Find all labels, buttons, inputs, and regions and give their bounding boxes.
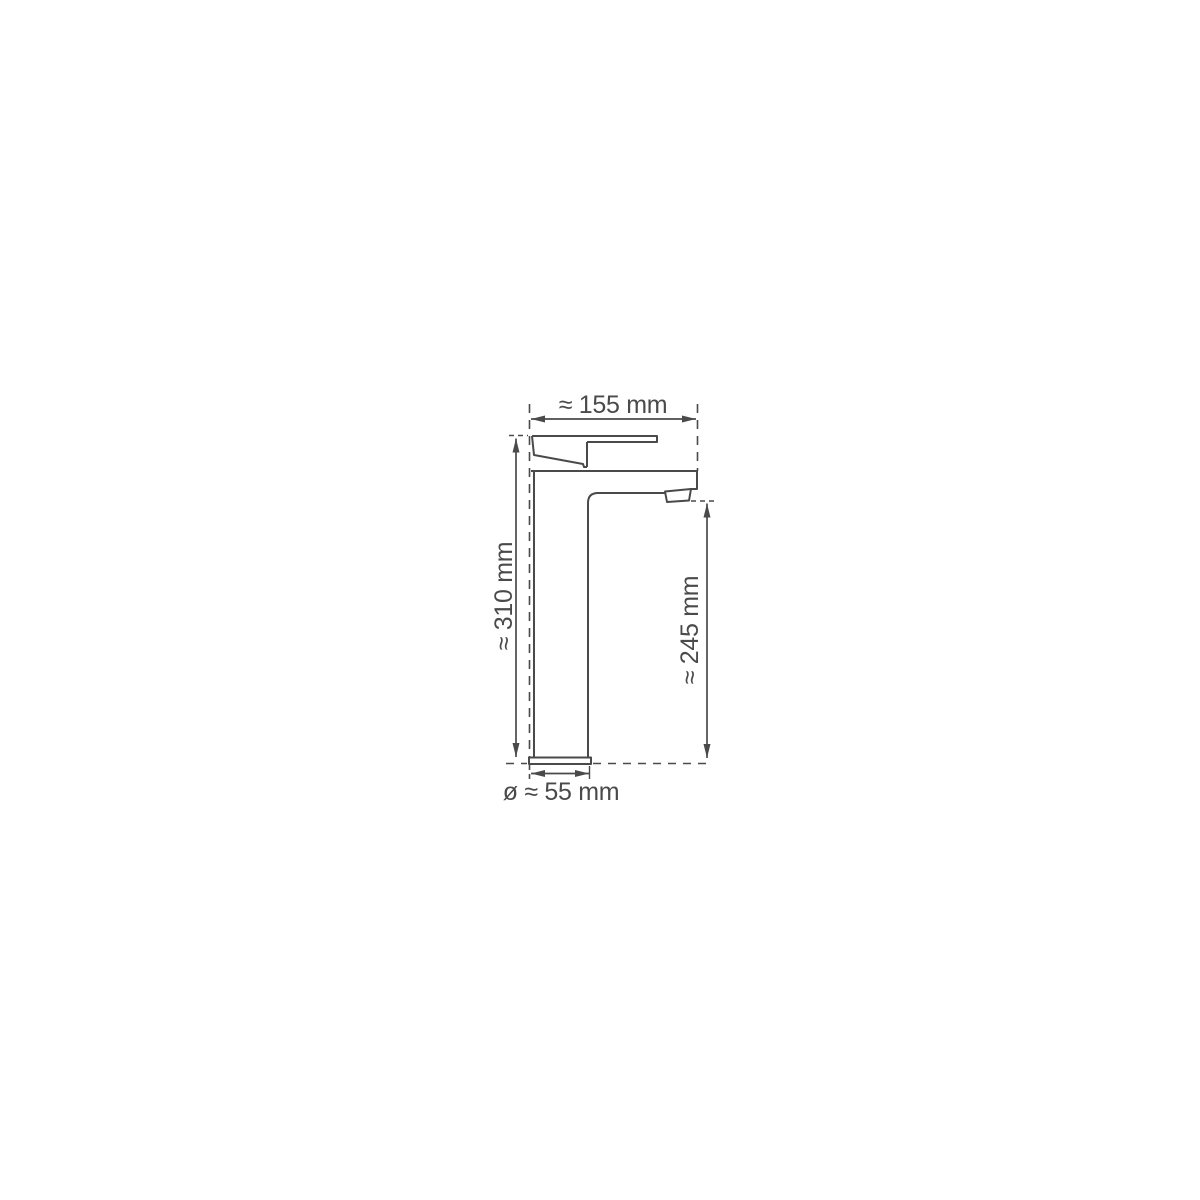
dimension-overall-width: ≈ 155 mm [530,391,698,757]
width-dimension-label: ≈ 155 mm [559,391,668,419]
faucet-body-deck [531,471,697,489]
faucet-spout-aerator [665,489,691,502]
spout-height-dimension-label: ≈ 245 mm [676,576,704,685]
faucet-outline [529,436,697,764]
faucet-base-plate [529,758,591,765]
dimension-spout-height: ≈ 245 mm [676,501,714,758]
faucet-spout-underside [588,493,665,757]
height-dimension-label: ≈ 310 mm [490,542,518,651]
diagram-canvas: ≈ 155 mm ≈ 310 mm ≈ 245 mm ø ≈ 55 mm [0,0,1200,1200]
faucet-technical-drawing: ≈ 155 mm ≈ 310 mm ≈ 245 mm ø ≈ 55 mm [0,0,1200,1200]
dimension-base-diameter: ø ≈ 55 mm [503,765,620,806]
dimension-overall-height: ≈ 310 mm [490,436,528,758]
base-diameter-dimension-label: ø ≈ 55 mm [503,778,620,806]
faucet-lever-handle [532,436,657,467]
